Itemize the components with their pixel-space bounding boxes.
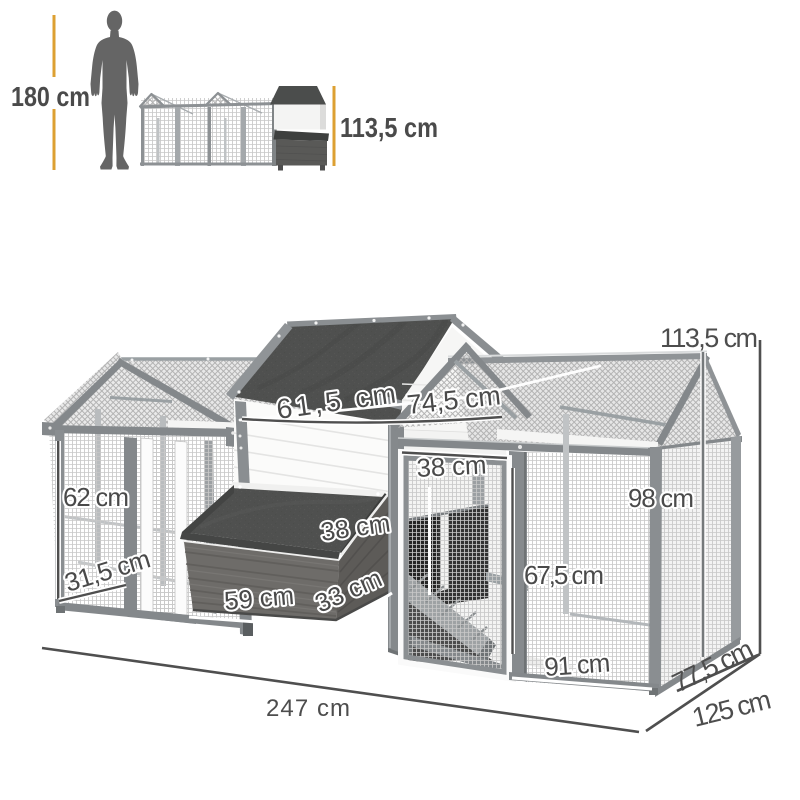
svg-text:91 cm: 91 cm — [543, 647, 611, 682]
svg-text:247 cm: 247 cm — [266, 695, 350, 722]
svg-text:113,5 cm: 113,5 cm — [660, 323, 758, 353]
svg-text:98 cm: 98 cm — [628, 483, 694, 513]
svg-text:67,5 cm: 67,5 cm — [524, 560, 604, 590]
svg-text:180 cm: 180 cm — [11, 81, 90, 112]
svg-text:113,5 cm: 113,5 cm — [340, 112, 438, 143]
svg-text:59 cm: 59 cm — [223, 580, 295, 616]
svg-text:38 cm: 38 cm — [416, 449, 487, 483]
svg-text:62 cm: 62 cm — [63, 482, 129, 512]
